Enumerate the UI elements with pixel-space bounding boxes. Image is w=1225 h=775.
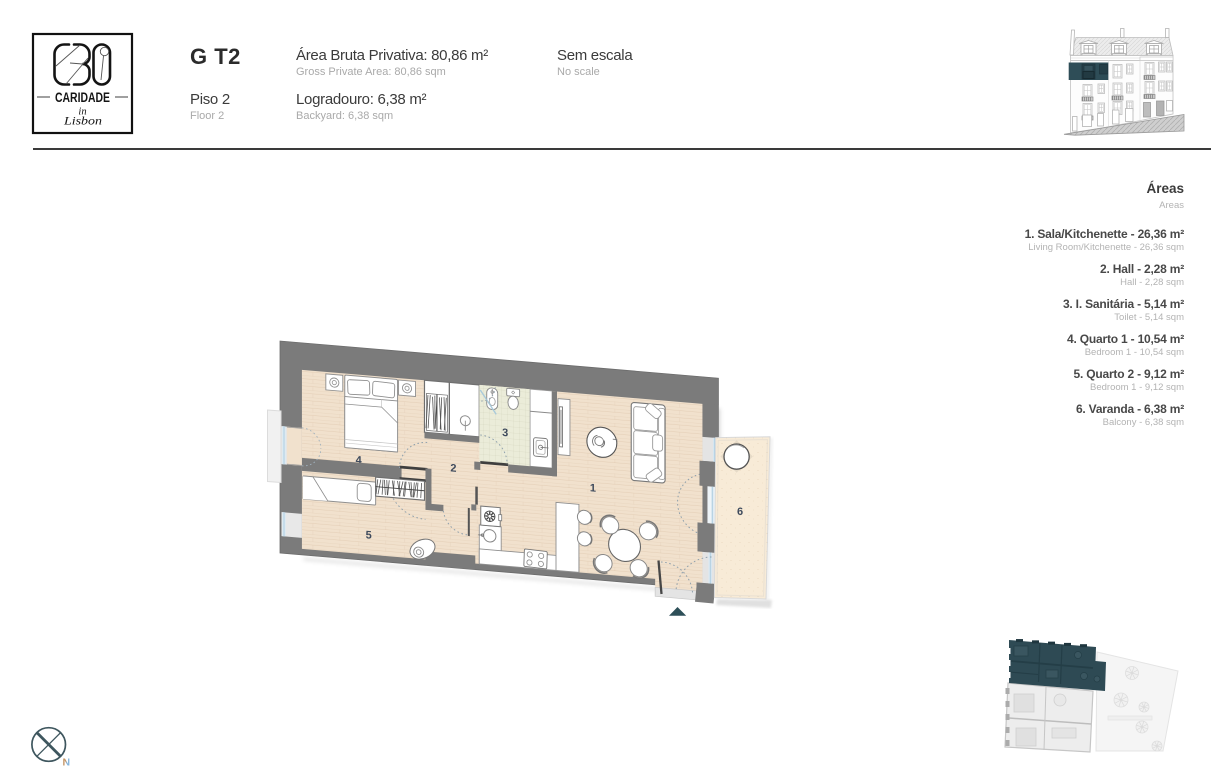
- svg-text:CARIDADE: CARIDADE: [55, 90, 110, 105]
- svg-text:N: N: [63, 757, 71, 769]
- svg-text:2: 2: [450, 462, 456, 475]
- svg-text:Lisbon: Lisbon: [63, 116, 103, 128]
- svg-text:6: 6: [737, 506, 743, 518]
- svg-text:1: 1: [590, 482, 596, 495]
- svg-text:5: 5: [366, 529, 372, 542]
- svg-text:3: 3: [502, 427, 508, 440]
